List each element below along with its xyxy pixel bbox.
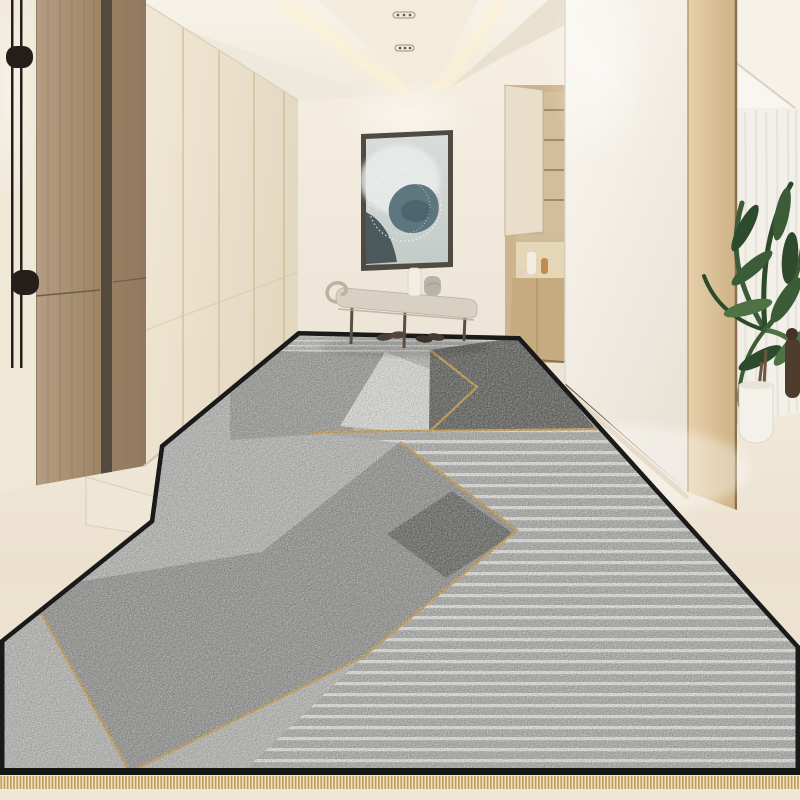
spotlight-dot bbox=[397, 14, 400, 17]
niche-bowl bbox=[518, 269, 527, 275]
ceiling-spotlight-2 bbox=[395, 45, 414, 51]
pot-rim bbox=[739, 381, 773, 389]
lamp-knob-2 bbox=[11, 270, 39, 295]
decor-sculpture bbox=[785, 338, 800, 398]
bench-towel-roll bbox=[424, 276, 441, 296]
artwork-teal-core bbox=[401, 200, 431, 222]
rug-gold-fringe bbox=[0, 776, 800, 789]
niche-vase-white bbox=[527, 252, 536, 274]
niche-upper-door bbox=[505, 85, 543, 236]
lamp-knob-1 bbox=[6, 46, 33, 68]
wood-door-side-strip bbox=[113, 0, 146, 535]
decor-sculpture-top bbox=[786, 328, 798, 340]
ceiling-spotlight-1 bbox=[393, 12, 415, 18]
spotlight-dot bbox=[404, 47, 407, 50]
scene-canvas bbox=[0, 0, 800, 800]
niche-amber-bottle bbox=[541, 258, 548, 274]
niche-recess-shadow bbox=[516, 234, 564, 242]
hallway-photo bbox=[0, 0, 800, 800]
spotlight-dot bbox=[403, 14, 406, 17]
spotlight-dot bbox=[409, 14, 412, 17]
bench-vase bbox=[408, 268, 421, 296]
spotlight-dot bbox=[399, 47, 402, 50]
spotlight-dot bbox=[409, 47, 412, 50]
wood-door-gap bbox=[101, 0, 112, 538]
plant-pot bbox=[739, 385, 773, 443]
framed-artwork bbox=[360, 130, 453, 271]
